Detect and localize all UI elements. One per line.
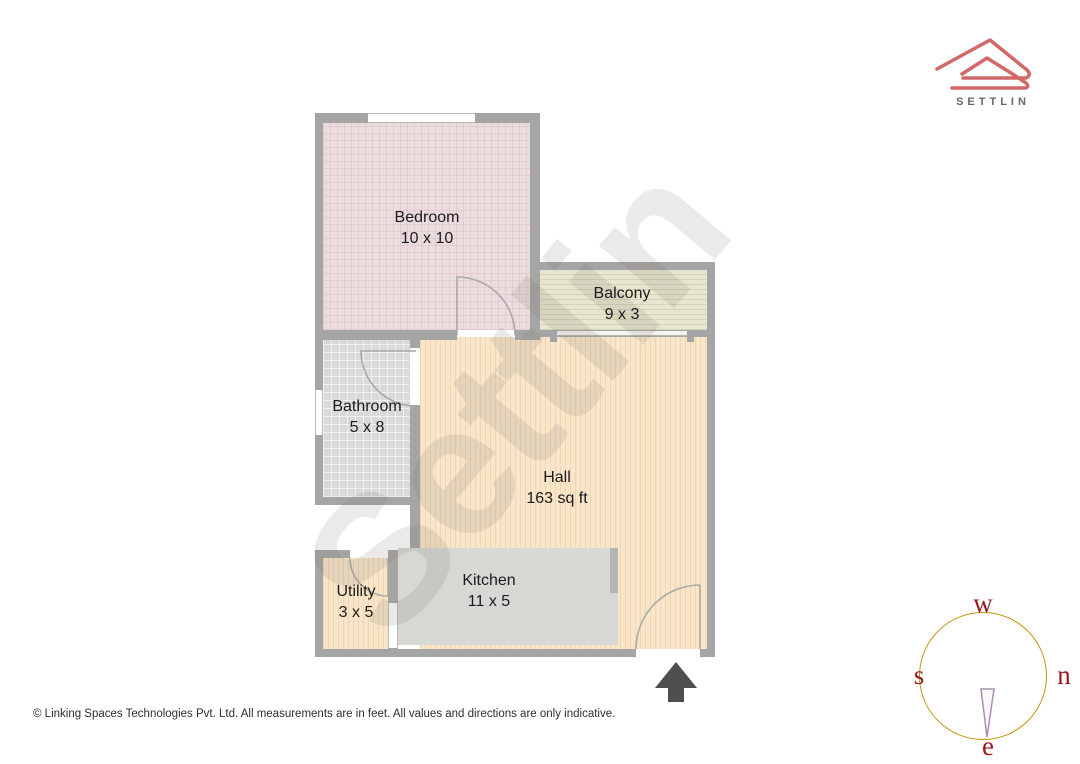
settlin-logo-icon (930, 30, 1040, 94)
room-label-bathroom: Bathroom 5 x 8 (332, 396, 401, 438)
room-name: Utility (336, 581, 375, 602)
room-name: Bedroom (395, 207, 460, 228)
room-name: Hall (526, 467, 587, 488)
room-name: Balcony (594, 283, 651, 304)
room-dimensions: 10 x 10 (395, 228, 460, 249)
room-name: Bathroom (332, 396, 401, 417)
entrance-arrow-icon (655, 662, 697, 702)
bedroom-door-arc (457, 277, 515, 335)
room-dimensions: 3 x 5 (336, 602, 375, 623)
room-name: Kitchen (462, 570, 515, 591)
room-label-hall: Hall 163 sq ft (526, 467, 587, 509)
room-dimensions: 11 x 5 (462, 591, 515, 612)
room-label-balcony: Balcony 9 x 3 (594, 283, 651, 325)
room-label-kitchen: Kitchen 11 x 5 (462, 570, 515, 612)
room-dimensions: 163 sq ft (526, 488, 587, 509)
room-label-utility: Utility 3 x 5 (336, 581, 375, 623)
room-label-bedroom: Bedroom 10 x 10 (395, 207, 460, 249)
door-swing-arcs (0, 0, 1080, 764)
entrance-door-arc (636, 585, 700, 649)
room-dimensions: 5 x 8 (332, 417, 401, 438)
floor-plan-page: SETTLIN Settlin (0, 0, 1080, 764)
room-dimensions: 9 x 3 (594, 304, 651, 325)
